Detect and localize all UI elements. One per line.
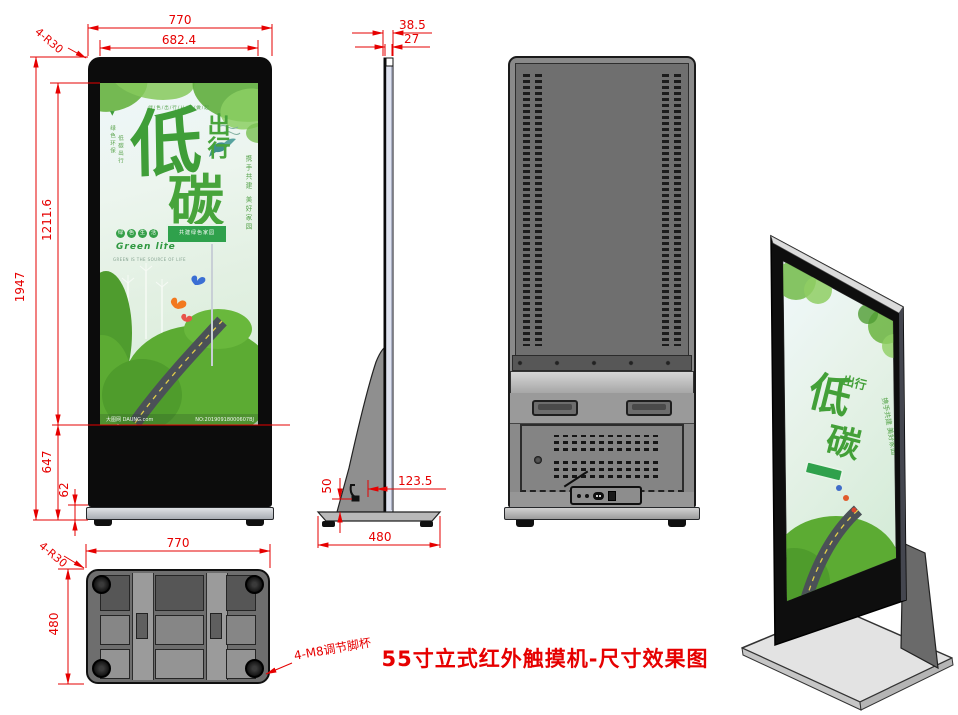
dim-bottom-depth: 480 [48, 602, 60, 646]
bottom-panel-mid-center [155, 615, 204, 645]
dim-front-lower-height: 647 [41, 440, 53, 484]
back-screw-band [512, 355, 692, 371]
front-base-strip [86, 507, 274, 520]
side-panel [384, 58, 393, 512]
badge-3: 生 [138, 229, 147, 238]
handle-right[interactable] [626, 400, 672, 416]
poster-left-col2: 低碳出行 [116, 135, 124, 165]
dim-bottom-corner-radius: 4-R30 [37, 540, 69, 569]
poster-tagline: GREEN IS THE SOURCE OF LIFE [113, 257, 186, 262]
perspective-view: 低 出行 碳 携手共建 美好家园 [718, 198, 958, 715]
headline-tan: 碳 [168, 175, 224, 231]
rail-clip-left [136, 613, 148, 639]
drawing-title: 55寸立式红外触摸机-尺寸效果图 [380, 643, 710, 673]
back-light-band [510, 371, 694, 395]
bottom-panel-mid-right [226, 615, 256, 645]
dim-front-width: 770 [88, 14, 272, 26]
side-stand-wedge [337, 348, 384, 512]
watermark-left: 大图网 DAUNG.com [106, 416, 153, 423]
poster-left-col1: 绿色环保 [108, 125, 116, 155]
poster-badges: 绿 色 生 活 [116, 229, 158, 238]
io-button-1[interactable] [577, 494, 581, 498]
perspective-stand-wedge [901, 543, 938, 668]
green-road-sign: 共建绿色家园 [166, 224, 228, 244]
front-foot-right [246, 520, 264, 526]
vent-column-1 [523, 74, 530, 346]
bottom-view-plate [86, 569, 270, 684]
power-inlet[interactable] [593, 492, 604, 500]
poster-right-vertical: 携手共建 美好家园 [243, 155, 253, 232]
dim-front-screen-width: 682.4 [100, 34, 258, 46]
dim-front-total-height: 1947 [14, 265, 26, 309]
back-foot-left [516, 520, 534, 527]
dim-bottom-feet-note: 4-M8调节脚杯 [293, 636, 372, 661]
vent-column-2 [535, 74, 542, 346]
back-foot-right [668, 520, 686, 527]
handle-left[interactable] [532, 400, 578, 416]
bottom-panel-low-center [155, 649, 204, 679]
headline-chuxing: 出行 [204, 113, 227, 159]
back-io-strip [510, 492, 694, 507]
io-panel [570, 486, 642, 505]
power-switch[interactable] [608, 491, 616, 501]
bottom-panel-top-center [155, 575, 204, 611]
side-view [300, 20, 460, 560]
badge-2: 色 [127, 229, 136, 238]
door-vent-grid-lower [554, 458, 660, 478]
bottom-foot-bl [92, 659, 111, 678]
back-handle-zone [510, 393, 694, 424]
dim-front-screen-height: 1211.6 [41, 198, 53, 242]
dim-front-base-height: 62 [58, 468, 70, 512]
dim-bottom-width: 770 [86, 537, 270, 549]
sign-pole [211, 244, 213, 366]
badge-4: 活 [149, 229, 158, 238]
vent-column-3 [662, 74, 669, 346]
bottom-panel-mid-left [100, 615, 130, 645]
side-base [318, 512, 440, 527]
bottom-foot-tl [92, 575, 111, 594]
io-button-2[interactable] [585, 494, 589, 498]
side-foot-rear [420, 521, 433, 527]
side-foot-front [322, 521, 335, 527]
dim-front-corner-radius: 4-R30 [33, 26, 65, 55]
door-vent-grid-upper [554, 435, 660, 451]
bottom-foot-tr [245, 575, 264, 594]
dimension-drawing-canvas: 绿/色/出/行/从/我/做/起 ▼ 绿色环保 低碳出行 低 出行 碳 携手共建 … [0, 0, 958, 715]
side-top-cap [386, 58, 393, 66]
watermark-right: NO:20190918000607BJ [195, 417, 254, 423]
door-lock[interactable] [534, 456, 542, 464]
rail-clip-right [210, 613, 222, 639]
back-top-panel [515, 63, 689, 357]
front-screen-poster: 绿/色/出/行/从/我/做/起 ▼ 绿色环保 低碳出行 低 出行 碳 携手共建 … [100, 83, 258, 425]
poster-marker: ▼ [110, 110, 115, 117]
bottom-foot-br [245, 659, 264, 678]
front-foot-left [94, 520, 112, 526]
back-access-door[interactable] [520, 424, 684, 492]
back-view-body [508, 56, 696, 507]
back-base-strip [504, 507, 700, 520]
vent-column-4 [674, 74, 681, 346]
badge-1: 绿 [116, 229, 125, 238]
